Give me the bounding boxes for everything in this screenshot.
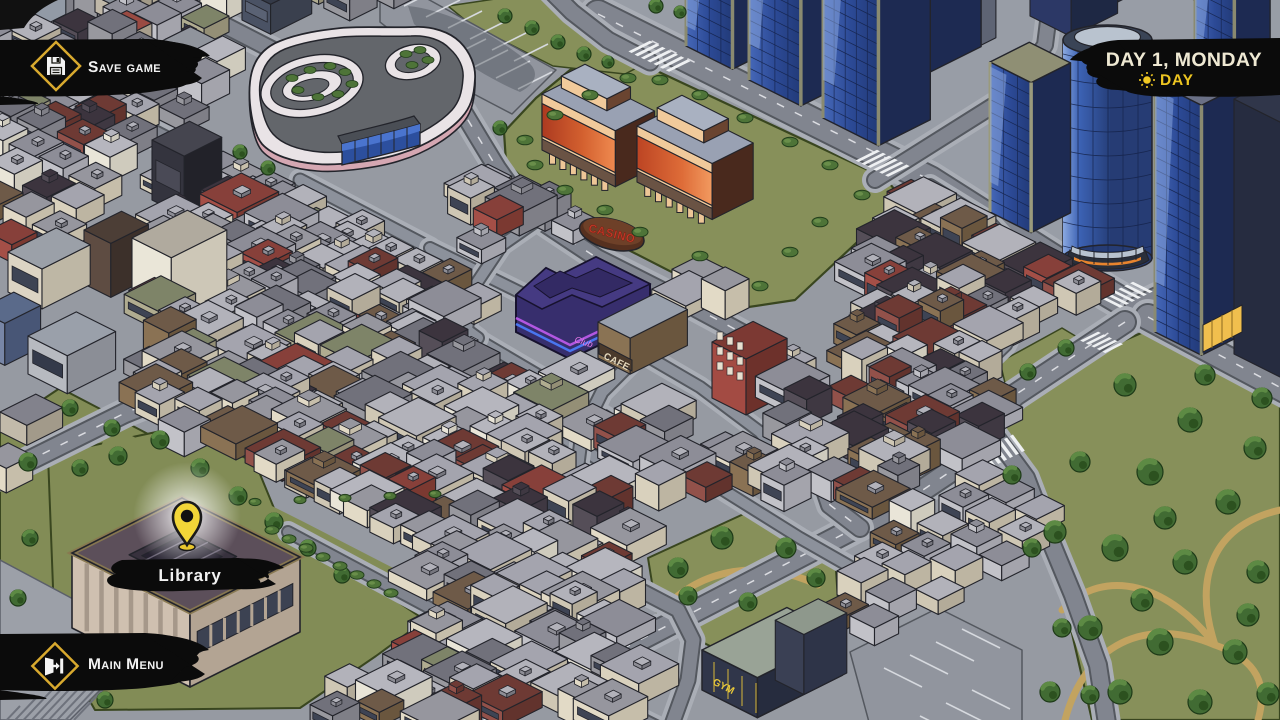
svg-text:DAY: DAY (1160, 72, 1194, 89)
svg-text:Library: Library (158, 566, 221, 585)
svg-text:Save game: Save game (88, 59, 161, 76)
svg-text:Main Menu: Main Menu (88, 656, 164, 673)
svg-text:DAY 1, MONDAY: DAY 1, MONDAY (1106, 49, 1262, 71)
